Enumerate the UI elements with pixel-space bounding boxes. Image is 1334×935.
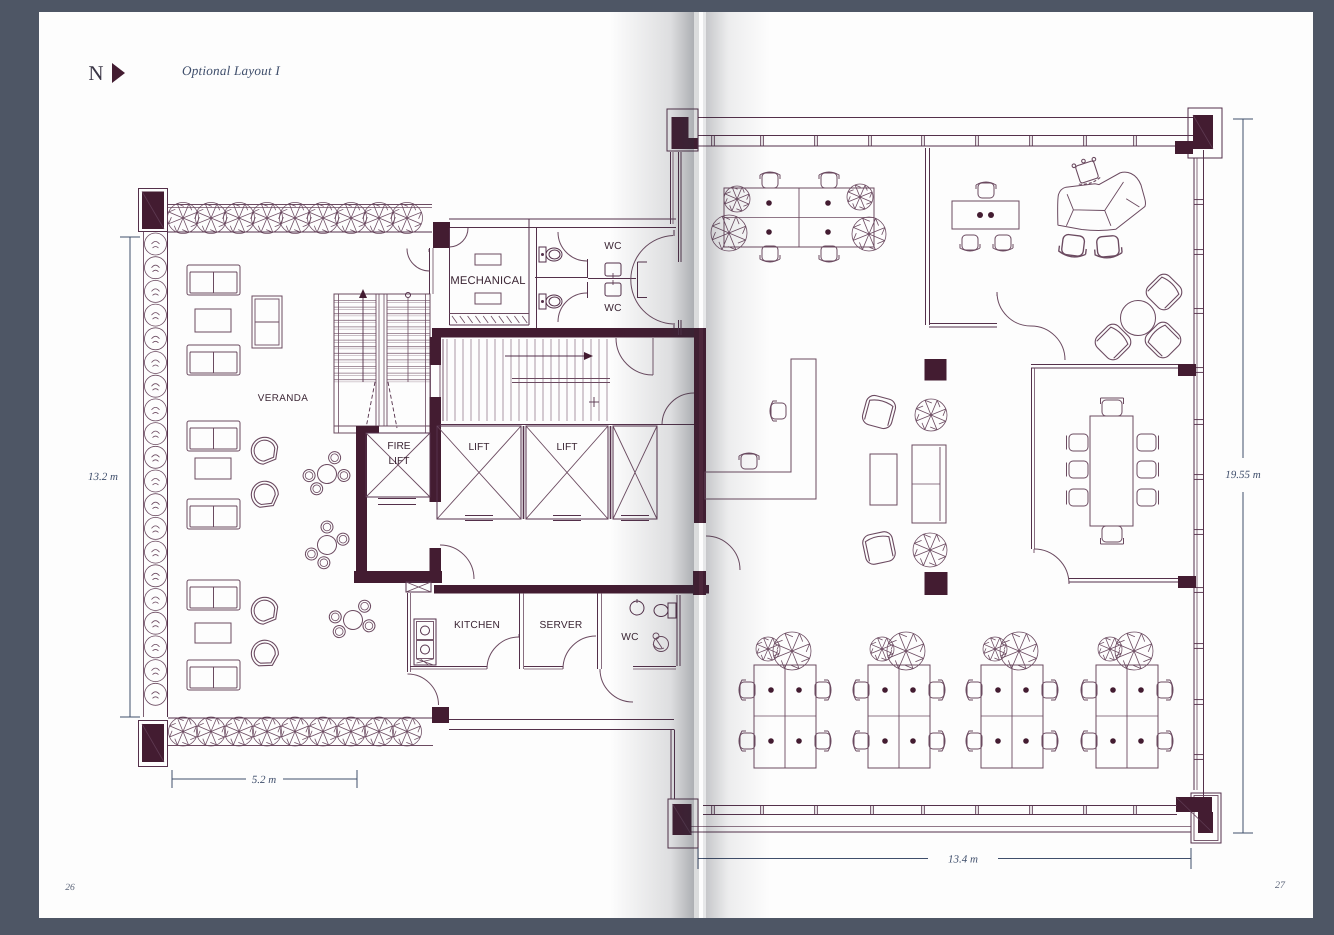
- svg-text:26: 26: [65, 883, 75, 893]
- svg-text:13.2 m: 13.2 m: [88, 471, 118, 483]
- svg-text:VERANDA: VERANDA: [258, 393, 309, 404]
- svg-text:MECHANICAL: MECHANICAL: [450, 275, 525, 287]
- svg-text:LIFT: LIFT: [557, 442, 578, 453]
- svg-text:13.4 m: 13.4 m: [948, 854, 978, 866]
- svg-text:N: N: [88, 61, 103, 85]
- svg-text:FIRE: FIRE: [387, 441, 410, 452]
- svg-text:KITCHEN: KITCHEN: [454, 620, 500, 631]
- svg-text:27: 27: [1275, 880, 1286, 891]
- svg-text:SERVER: SERVER: [540, 620, 583, 631]
- svg-text:19.55 m: 19.55 m: [1225, 469, 1261, 481]
- svg-text:Optional Layout I: Optional Layout I: [182, 63, 280, 78]
- svg-text:LIFT: LIFT: [469, 442, 490, 453]
- svg-text:LIFT: LIFT: [389, 456, 410, 467]
- svg-text:5.2 m: 5.2 m: [252, 774, 277, 786]
